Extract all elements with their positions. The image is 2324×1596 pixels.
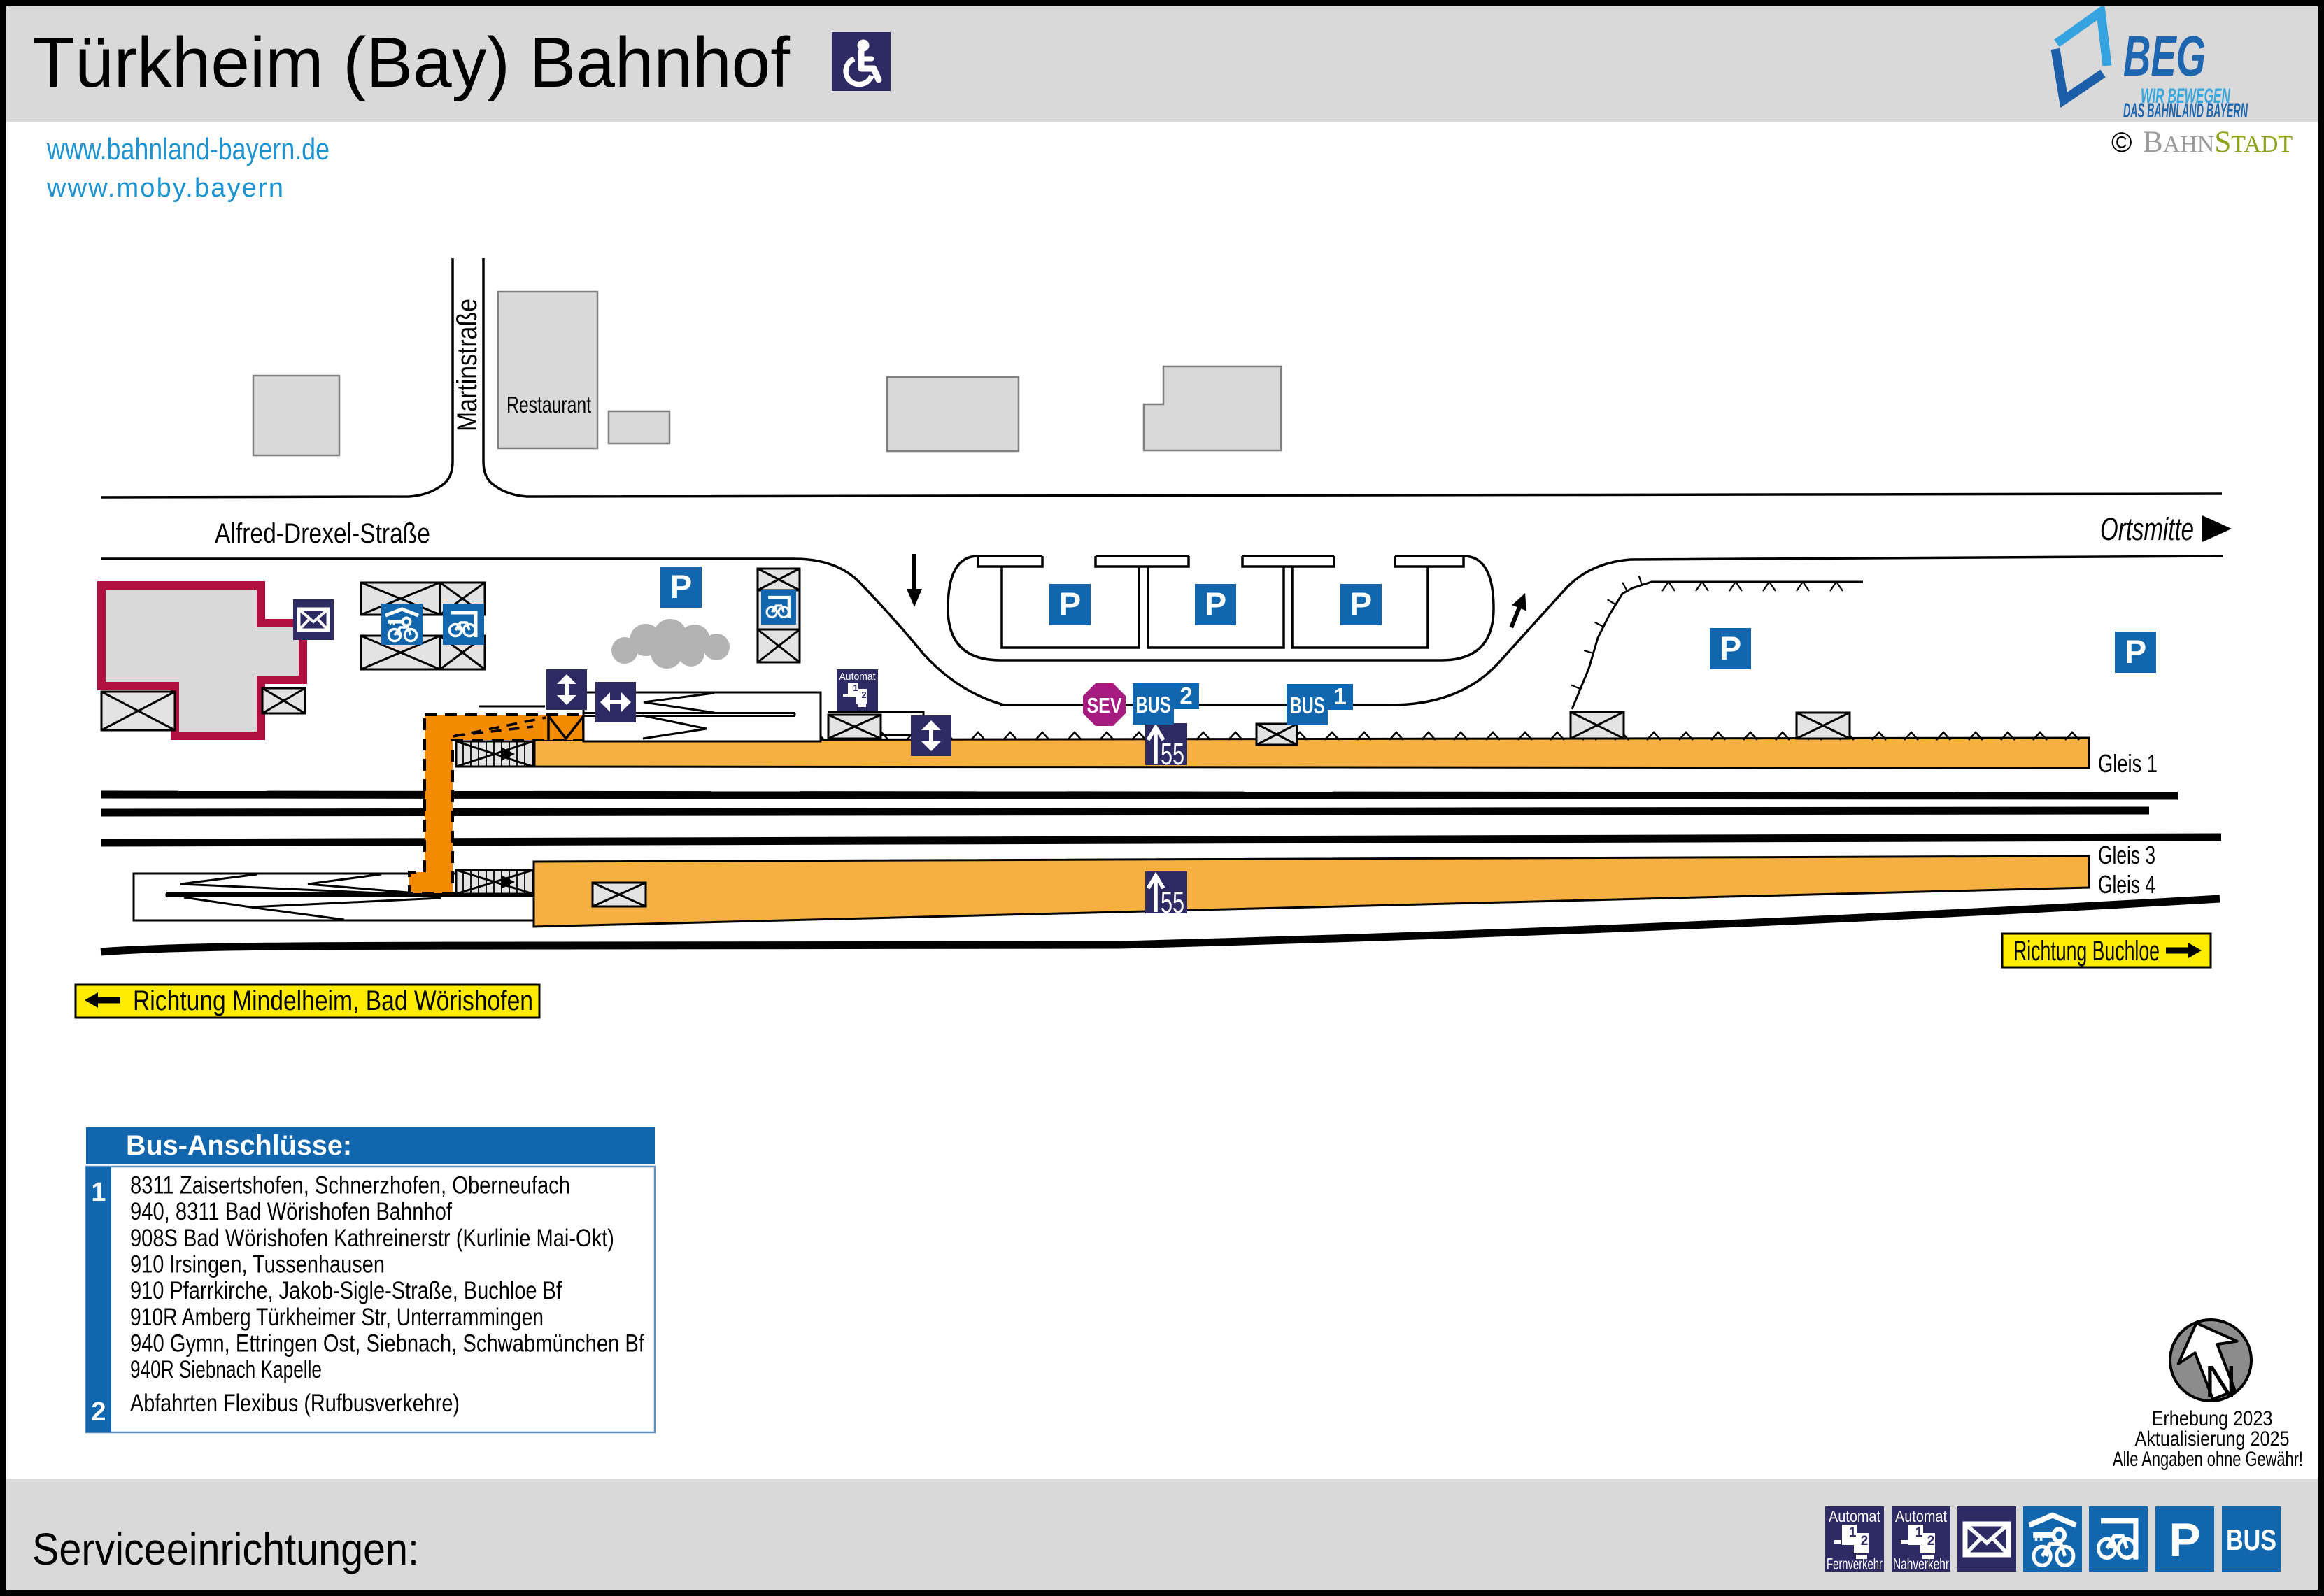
svg-text:Gleis 1: Gleis 1	[2098, 749, 2158, 778]
svg-text:Serviceeinrichtungen:: Serviceeinrichtungen:	[32, 1524, 419, 1574]
svg-text:910 Irsingen, Tussenhausen: 910 Irsingen, Tussenhausen	[130, 1251, 385, 1278]
svg-text:Gleis 4: Gleis 4	[2098, 870, 2155, 899]
svg-text:Alfred-Drexel-Straße: Alfred-Drexel-Straße	[215, 518, 430, 549]
svg-text:1: 1	[853, 683, 858, 693]
svg-text:BUS: BUS	[2226, 1523, 2276, 1556]
svg-text:P: P	[670, 568, 692, 605]
svg-text:55: 55	[1161, 737, 1184, 771]
svg-text:BEG: BEG	[2123, 24, 2206, 88]
svg-text:BUS: BUS	[1136, 692, 1171, 718]
svg-text:Alle Angaben ohne Gewähr!: Alle Angaben ohne Gewähr!	[2113, 1448, 2303, 1471]
svg-text:940, 8311 Bad Wörishofen Bahnh: 940, 8311 Bad Wörishofen Bahnhof	[130, 1198, 452, 1225]
svg-text:2: 2	[1179, 683, 1192, 708]
svg-text:www.moby.bayern: www.moby.bayern	[46, 173, 283, 203]
svg-text:1: 1	[1849, 1525, 1857, 1540]
svg-text:DAS BAHNLAND BAYERN: DAS BAHNLAND BAYERN	[2123, 99, 2248, 122]
svg-text:55: 55	[1161, 885, 1184, 920]
svg-text:Fernverkehr: Fernverkehr	[1827, 1555, 1883, 1573]
svg-text:P: P	[2125, 633, 2146, 670]
svg-text:2: 2	[91, 1397, 106, 1427]
svg-text:Automat: Automat	[1829, 1507, 1881, 1525]
svg-text:Automat: Automat	[839, 671, 877, 683]
svg-text:940R Siebnach Kapelle: 940R Siebnach Kapelle	[130, 1356, 322, 1383]
svg-text:910R Amberg Türkheimer Str, Un: 910R Amberg Türkheimer Str, Unterramming…	[130, 1304, 544, 1331]
svg-text:P: P	[1059, 585, 1081, 622]
svg-text:P: P	[1205, 585, 1226, 622]
svg-text:Abfahrten Flexibus (Rufbusverk: Abfahrten Flexibus (Rufbusverkehre)	[130, 1390, 460, 1417]
svg-text:940 Gymn, Ettringen Ost, Siebn: 940 Gymn, Ettringen Ost, Siebnach, Schwa…	[130, 1330, 644, 1358]
svg-text:910 Pfarrkirche, Jakob-Sigle-S: 910 Pfarrkirche, Jakob-Sigle-Straße, Buc…	[130, 1277, 562, 1304]
svg-text:Bus-Anschlüsse:: Bus-Anschlüsse:	[126, 1130, 352, 1161]
svg-text:908S Bad Wörishofen Kathreiner: 908S Bad Wörishofen Kathreinerstr (Kurli…	[130, 1225, 614, 1252]
svg-text:Restaurant: Restaurant	[506, 392, 591, 418]
svg-text:Nahverkehr: Nahverkehr	[1893, 1555, 1949, 1573]
svg-text:1: 1	[91, 1178, 106, 1207]
svg-text:©: ©	[2111, 127, 2132, 158]
svg-text:Martinstraße: Martinstraße	[452, 299, 483, 432]
svg-text:2: 2	[861, 690, 866, 700]
svg-text:Richtung Mindelheim, Bad Wöris: Richtung Mindelheim, Bad Wörishofen	[133, 985, 533, 1016]
svg-text:BUS: BUS	[1290, 692, 1325, 718]
svg-text:P: P	[1720, 629, 1741, 667]
svg-text:Ortsmitte: Ortsmitte	[2100, 511, 2194, 547]
svg-text:Richtung Buchloe: Richtung Buchloe	[2013, 936, 2160, 967]
svg-text:N: N	[2204, 1356, 2237, 1406]
svg-text:P: P	[1350, 585, 1372, 622]
svg-text:BAHNSTADT: BAHNSTADT	[2143, 126, 2293, 159]
svg-text:1: 1	[1333, 683, 1346, 709]
svg-text:8311 Zaisertshofen, Schnerzhof: 8311 Zaisertshofen, Schnerzhofen, Oberne…	[130, 1172, 570, 1199]
svg-text:Automat: Automat	[1895, 1507, 1948, 1525]
svg-text:www.bahnland-bayern.de: www.bahnland-bayern.de	[46, 132, 330, 166]
svg-text:P: P	[2169, 1513, 2200, 1567]
svg-text:Gleis 3: Gleis 3	[2098, 841, 2155, 869]
svg-text:2: 2	[1927, 1534, 1935, 1548]
svg-text:SEV: SEV	[1087, 693, 1122, 718]
svg-text:2: 2	[1861, 1534, 1869, 1548]
svg-text:Türkheim (Bay) Bahnhof: Türkheim (Bay) Bahnhof	[32, 24, 791, 102]
svg-text:1: 1	[1915, 1525, 1923, 1540]
